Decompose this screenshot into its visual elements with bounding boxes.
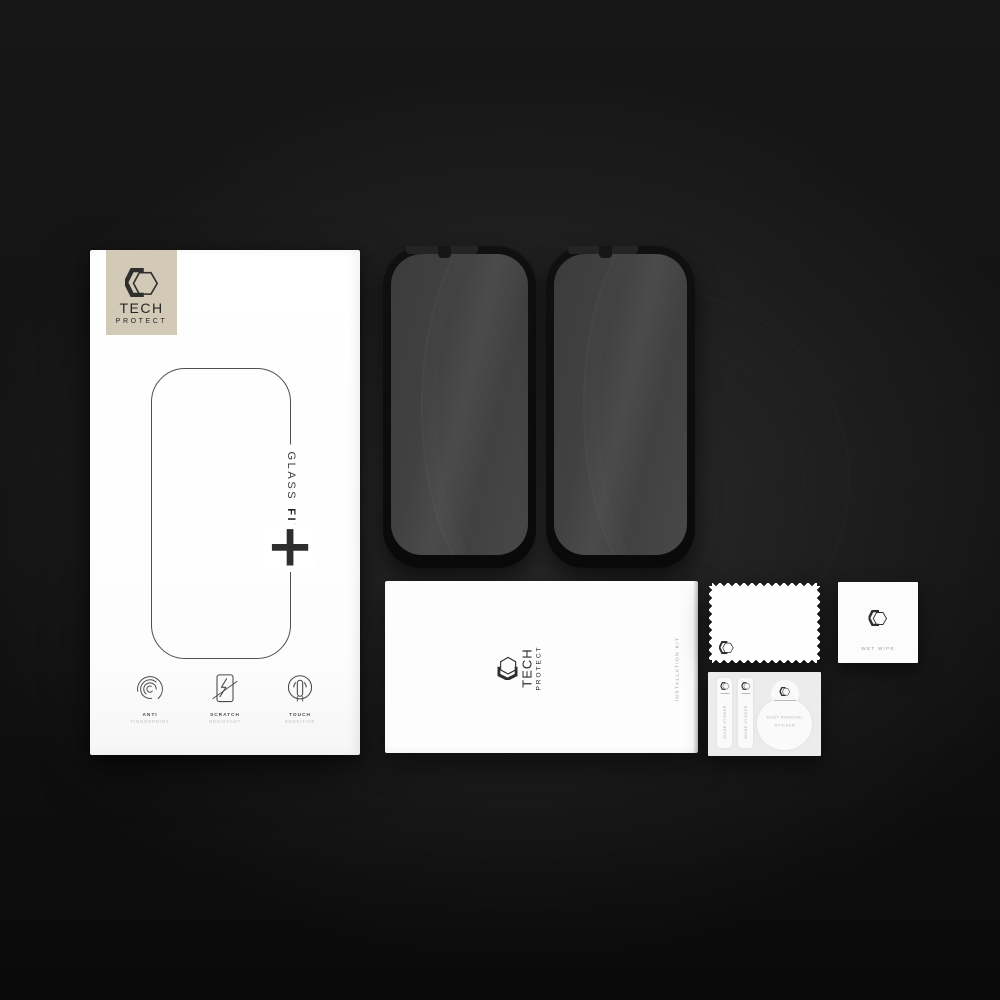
plus-mark: + [264, 523, 317, 568]
brand-subname: PROTECT [116, 318, 168, 325]
guide-sticker-label: GUIDE STICKER [744, 705, 748, 739]
feature-anti-fingerprint: ANTI FINGERPRINT [116, 672, 184, 732]
brand-name: TECH [520, 648, 535, 687]
brand-subname: PROTECT [536, 645, 543, 690]
brand-hexagon-icon [779, 687, 790, 696]
kit-brand-logo: TECH PROTECT [498, 630, 543, 706]
installation-kit-label: INSTALLATION KIT [674, 637, 680, 702]
dust-removal-sticker: DUST REMOVAL STICKER [757, 680, 812, 750]
notch-tab [599, 246, 612, 258]
fingerprint-icon [134, 672, 166, 708]
notch-cutout [568, 246, 638, 254]
touch-icon [284, 672, 316, 708]
product-name-glass: GLASS [285, 452, 297, 502]
feature-row: ANTI FINGERPRINT SCRATCH RESISTANT [116, 672, 334, 732]
feature-sublabel: FINGERPRINT [111, 719, 189, 724]
brand-hexagon-icon [498, 656, 518, 680]
guide-sticker-label: GUIDE STICKER [723, 705, 727, 739]
notch-cutout [406, 246, 478, 254]
sticker-sheet: GUIDE STICKER GUIDE STICKER DUST REMOVAL… [708, 672, 821, 756]
scratch-icon [209, 672, 241, 708]
divider-line [720, 693, 729, 694]
divider-line [774, 700, 796, 701]
product-scene: TECH PROTECT GLASSFIT + ANTI [0, 0, 1000, 1000]
installation-kit-box: TECH PROTECT INSTALLATION KIT [385, 581, 698, 753]
microfiber-cloth [709, 583, 820, 663]
glass-protector-1 [383, 246, 536, 568]
guide-sticker-2: GUIDE STICKER [738, 678, 753, 748]
dust-sticker-label: STICKER [760, 724, 810, 728]
feature-sublabel: SENSITIVE [261, 719, 339, 724]
brand-name: TECH [119, 300, 163, 316]
feature-label: ANTI [111, 712, 189, 717]
brand-badge: TECH PROTECT [106, 250, 177, 335]
brand-hexagon-icon [741, 682, 750, 690]
wet-wipe-label: WET WIPE [861, 646, 895, 651]
feature-sublabel: RESISTANT [186, 719, 264, 724]
feature-scratch-resistant: SCRATCH RESISTANT [191, 672, 259, 732]
glass-screen [554, 254, 687, 555]
glass-protector-2 [546, 246, 695, 568]
dust-sticker-label: DUST REMOVAL [760, 716, 810, 720]
wet-wipe-sachet: WET WIPE [838, 582, 918, 663]
feature-label: SCRATCH [186, 712, 264, 717]
notch-tab [438, 246, 451, 258]
guide-sticker-1: GUIDE STICKER [717, 678, 732, 748]
brand-hexagon-icon [719, 641, 734, 654]
retail-box: TECH PROTECT GLASSFIT + ANTI [90, 250, 360, 755]
brand-hexagon-icon [720, 682, 729, 690]
brand-hexagon-icon [125, 268, 159, 297]
feature-touch-sensitive: TOUCH SENSITIVE [266, 672, 334, 732]
brand-hexagon-icon [869, 610, 888, 626]
glass-screen [391, 254, 528, 555]
divider-line [741, 693, 750, 694]
feature-label: TOUCH [261, 712, 339, 717]
